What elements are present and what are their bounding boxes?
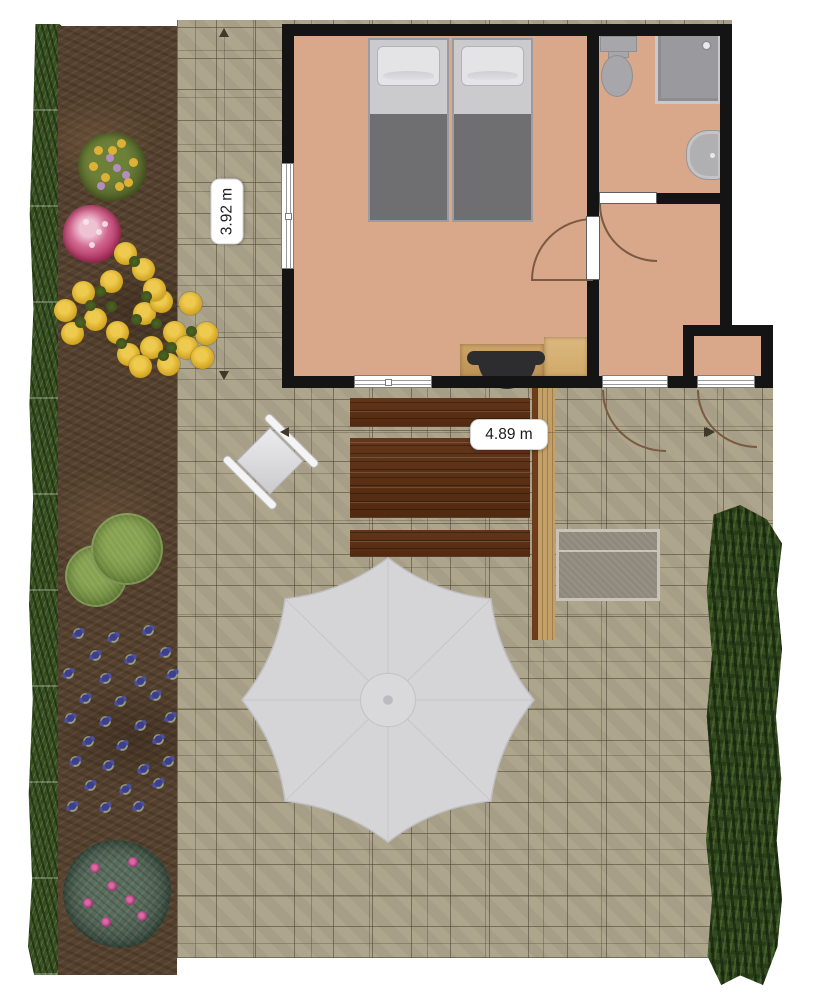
measurement-label-horizontal[interactable]: 4.89 m bbox=[470, 419, 548, 450]
window-handle bbox=[285, 213, 292, 220]
parasol-pole bbox=[383, 695, 393, 705]
wall-interior-horizontal[interactable] bbox=[657, 193, 720, 204]
bed-left[interactable] bbox=[368, 38, 449, 222]
floor-plan-canvas: 3.92 m 4.89 m bbox=[0, 0, 817, 1000]
doormat[interactable] bbox=[556, 529, 660, 601]
window-bedroom-south[interactable] bbox=[354, 375, 432, 388]
wall-interior-vertical-lower[interactable] bbox=[587, 280, 599, 376]
door-chord-bedroom bbox=[531, 279, 593, 281]
pink-rose-bush[interactable] bbox=[63, 205, 121, 263]
shower-drain bbox=[703, 42, 710, 49]
picnic-table[interactable] bbox=[350, 438, 530, 518]
desk-return[interactable] bbox=[544, 337, 588, 377]
entry-door-hall[interactable] bbox=[602, 375, 668, 388]
wall-bottom-1[interactable] bbox=[282, 376, 354, 388]
door-leaf-bathroom[interactable] bbox=[599, 192, 657, 204]
toilet-bowl[interactable] bbox=[601, 55, 633, 97]
toilet-tank[interactable] bbox=[600, 36, 637, 52]
bed-right[interactable] bbox=[452, 38, 533, 222]
window-handle bbox=[385, 379, 392, 386]
sink-faucet bbox=[710, 153, 715, 158]
flowering-bush-bottom[interactable] bbox=[63, 840, 171, 948]
wall-annex-right[interactable] bbox=[761, 336, 773, 388]
wall-annex-left[interactable] bbox=[683, 336, 694, 388]
wall-left-upper[interactable] bbox=[282, 24, 294, 164]
pillow-left bbox=[377, 46, 440, 86]
window-annex-south[interactable] bbox=[697, 375, 755, 388]
measure-arrow-right bbox=[704, 427, 713, 437]
measurement-label-vertical[interactable]: 3.92 m bbox=[211, 179, 244, 245]
left-hedge[interactable] bbox=[28, 24, 62, 975]
measure-arrow-top bbox=[219, 28, 229, 37]
measurement-text: 3.92 m bbox=[218, 188, 236, 235]
background-mask bbox=[732, 20, 773, 326]
window-left-wall[interactable] bbox=[281, 163, 294, 269]
parasol[interactable] bbox=[236, 552, 540, 848]
right-hedge[interactable] bbox=[706, 505, 782, 985]
mixed-flower-bush[interactable] bbox=[78, 133, 146, 201]
pillow-right bbox=[461, 46, 524, 86]
wall-left-lower[interactable] bbox=[282, 268, 294, 388]
shower-tray[interactable] bbox=[655, 33, 721, 104]
wall-bottom-2[interactable] bbox=[432, 376, 602, 388]
measure-arrow-left bbox=[280, 427, 289, 437]
wall-interior-vertical-upper[interactable] bbox=[587, 36, 599, 216]
wall-right-main[interactable] bbox=[720, 24, 732, 336]
wall-top[interactable] bbox=[282, 24, 732, 36]
door-leaf-bedroom[interactable] bbox=[586, 216, 600, 280]
measurement-text: 4.89 m bbox=[485, 426, 532, 444]
measure-arrow-bottom bbox=[219, 371, 229, 380]
parasol-canopy bbox=[236, 552, 540, 848]
wall-annex-top[interactable] bbox=[683, 325, 773, 336]
bathroom-sink[interactable] bbox=[686, 130, 722, 180]
shrub-large[interactable] bbox=[91, 513, 163, 585]
